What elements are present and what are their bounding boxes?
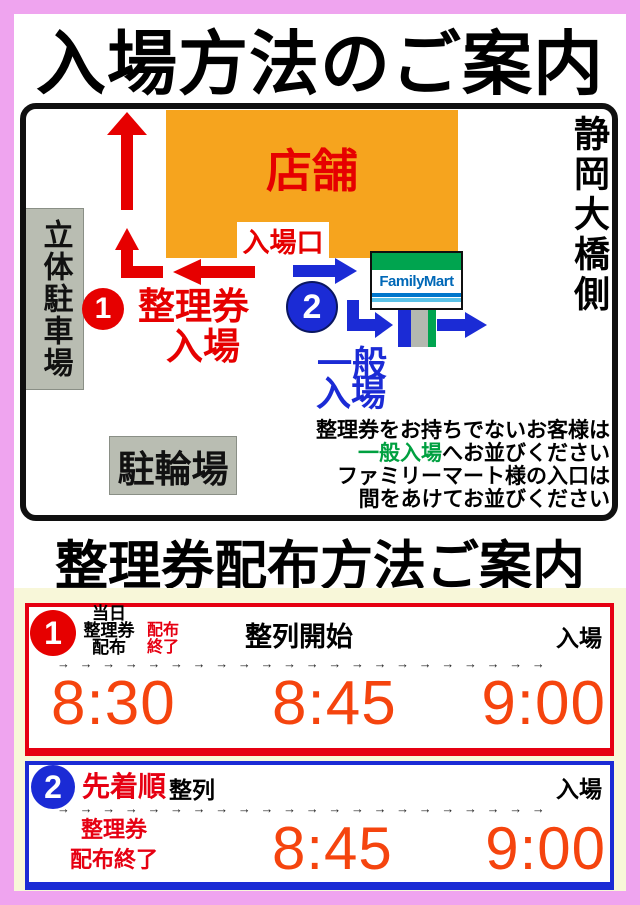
schedule-box-2: 2 先着順 整列 入場 → → → → → → → → → → → → → → … xyxy=(25,761,614,890)
familymart-entrance xyxy=(398,310,436,347)
time-900-box1: 9:00 xyxy=(481,673,606,735)
entry-guide-poster: 入場方法のご案内 店舗 立体駐車場 駐輪場 静岡大橋側 入場 xyxy=(0,0,640,905)
route1-label-line1: 整理券 xyxy=(138,289,249,326)
lineup-start-label: 整列開始 xyxy=(204,615,394,654)
blue-right-arrowhead xyxy=(335,258,357,284)
blue-exit-arrowhead xyxy=(465,312,487,338)
red-left-arrowhead xyxy=(173,259,201,285)
lineup-label: 整列 xyxy=(169,771,215,805)
red-elbow-arrowhead xyxy=(115,228,139,250)
red-up-arrowhead xyxy=(107,112,147,135)
schedule1-badge: 1 xyxy=(30,610,76,656)
route2-label-line2: 入場 xyxy=(316,377,386,412)
notice-line1: 整理券をお持ちでないお客様は xyxy=(316,419,610,442)
entry-label-1: 入場 xyxy=(556,619,602,653)
time-845-box2: 8:45 xyxy=(272,819,393,879)
timeline-arrows-2: → → → → → → → → → → → → → → → → → → → → … xyxy=(57,801,604,816)
route2-badge: 2 xyxy=(286,281,338,333)
notice-line3: ファミリーマート様の入口は xyxy=(316,465,610,488)
distribution-end-label: 配布 終了 xyxy=(141,622,185,656)
schedule-box-1: 1 当日 整理券 配布 配布 終了 整列開始 入場 → → → → → → → … xyxy=(25,603,614,756)
ticket-distribution-end-label: 整理券 配布終了 xyxy=(53,815,175,875)
route1-badge: 1 xyxy=(82,288,124,330)
ticket-distribution-label: 当日 整理券 配布 xyxy=(77,605,141,656)
time-845-box1: 8:45 xyxy=(272,673,397,735)
first-come-label: 先着順 xyxy=(82,765,166,805)
site-map: 店舗 立体駐車場 駐輪場 静岡大橋側 入場口 Fa xyxy=(20,103,618,521)
red-up-shaft xyxy=(121,133,133,210)
notice-line4: 間をあけてお並びください xyxy=(316,488,610,511)
familymart-blue-stripe xyxy=(372,293,461,297)
route1-label-line2: 入場 xyxy=(166,329,240,366)
page-title: 入場方法のご案内 xyxy=(0,8,640,109)
blue-elbow-arrowhead xyxy=(375,312,393,338)
time-900-box2: 9:00 xyxy=(485,819,606,879)
notice-line2: 一般入場へお並びください xyxy=(316,442,610,465)
time-830: 8:30 xyxy=(51,673,176,735)
queue-notice: 整理券をお持ちでないお客様は 一般入場へお並びください ファミリーマート様の入口… xyxy=(316,419,610,511)
notice-general-entry-green: 一般入場 xyxy=(358,442,442,465)
familymart-lightblue-stripe xyxy=(372,298,461,302)
familymart-green-band xyxy=(372,253,461,270)
entry-label-2: 入場 xyxy=(556,770,602,804)
familymart-sign: FamilyMart xyxy=(370,251,463,310)
familymart-logo-text: FamilyMart xyxy=(372,270,461,292)
entrance-gate-label: 入場口 xyxy=(237,222,329,259)
